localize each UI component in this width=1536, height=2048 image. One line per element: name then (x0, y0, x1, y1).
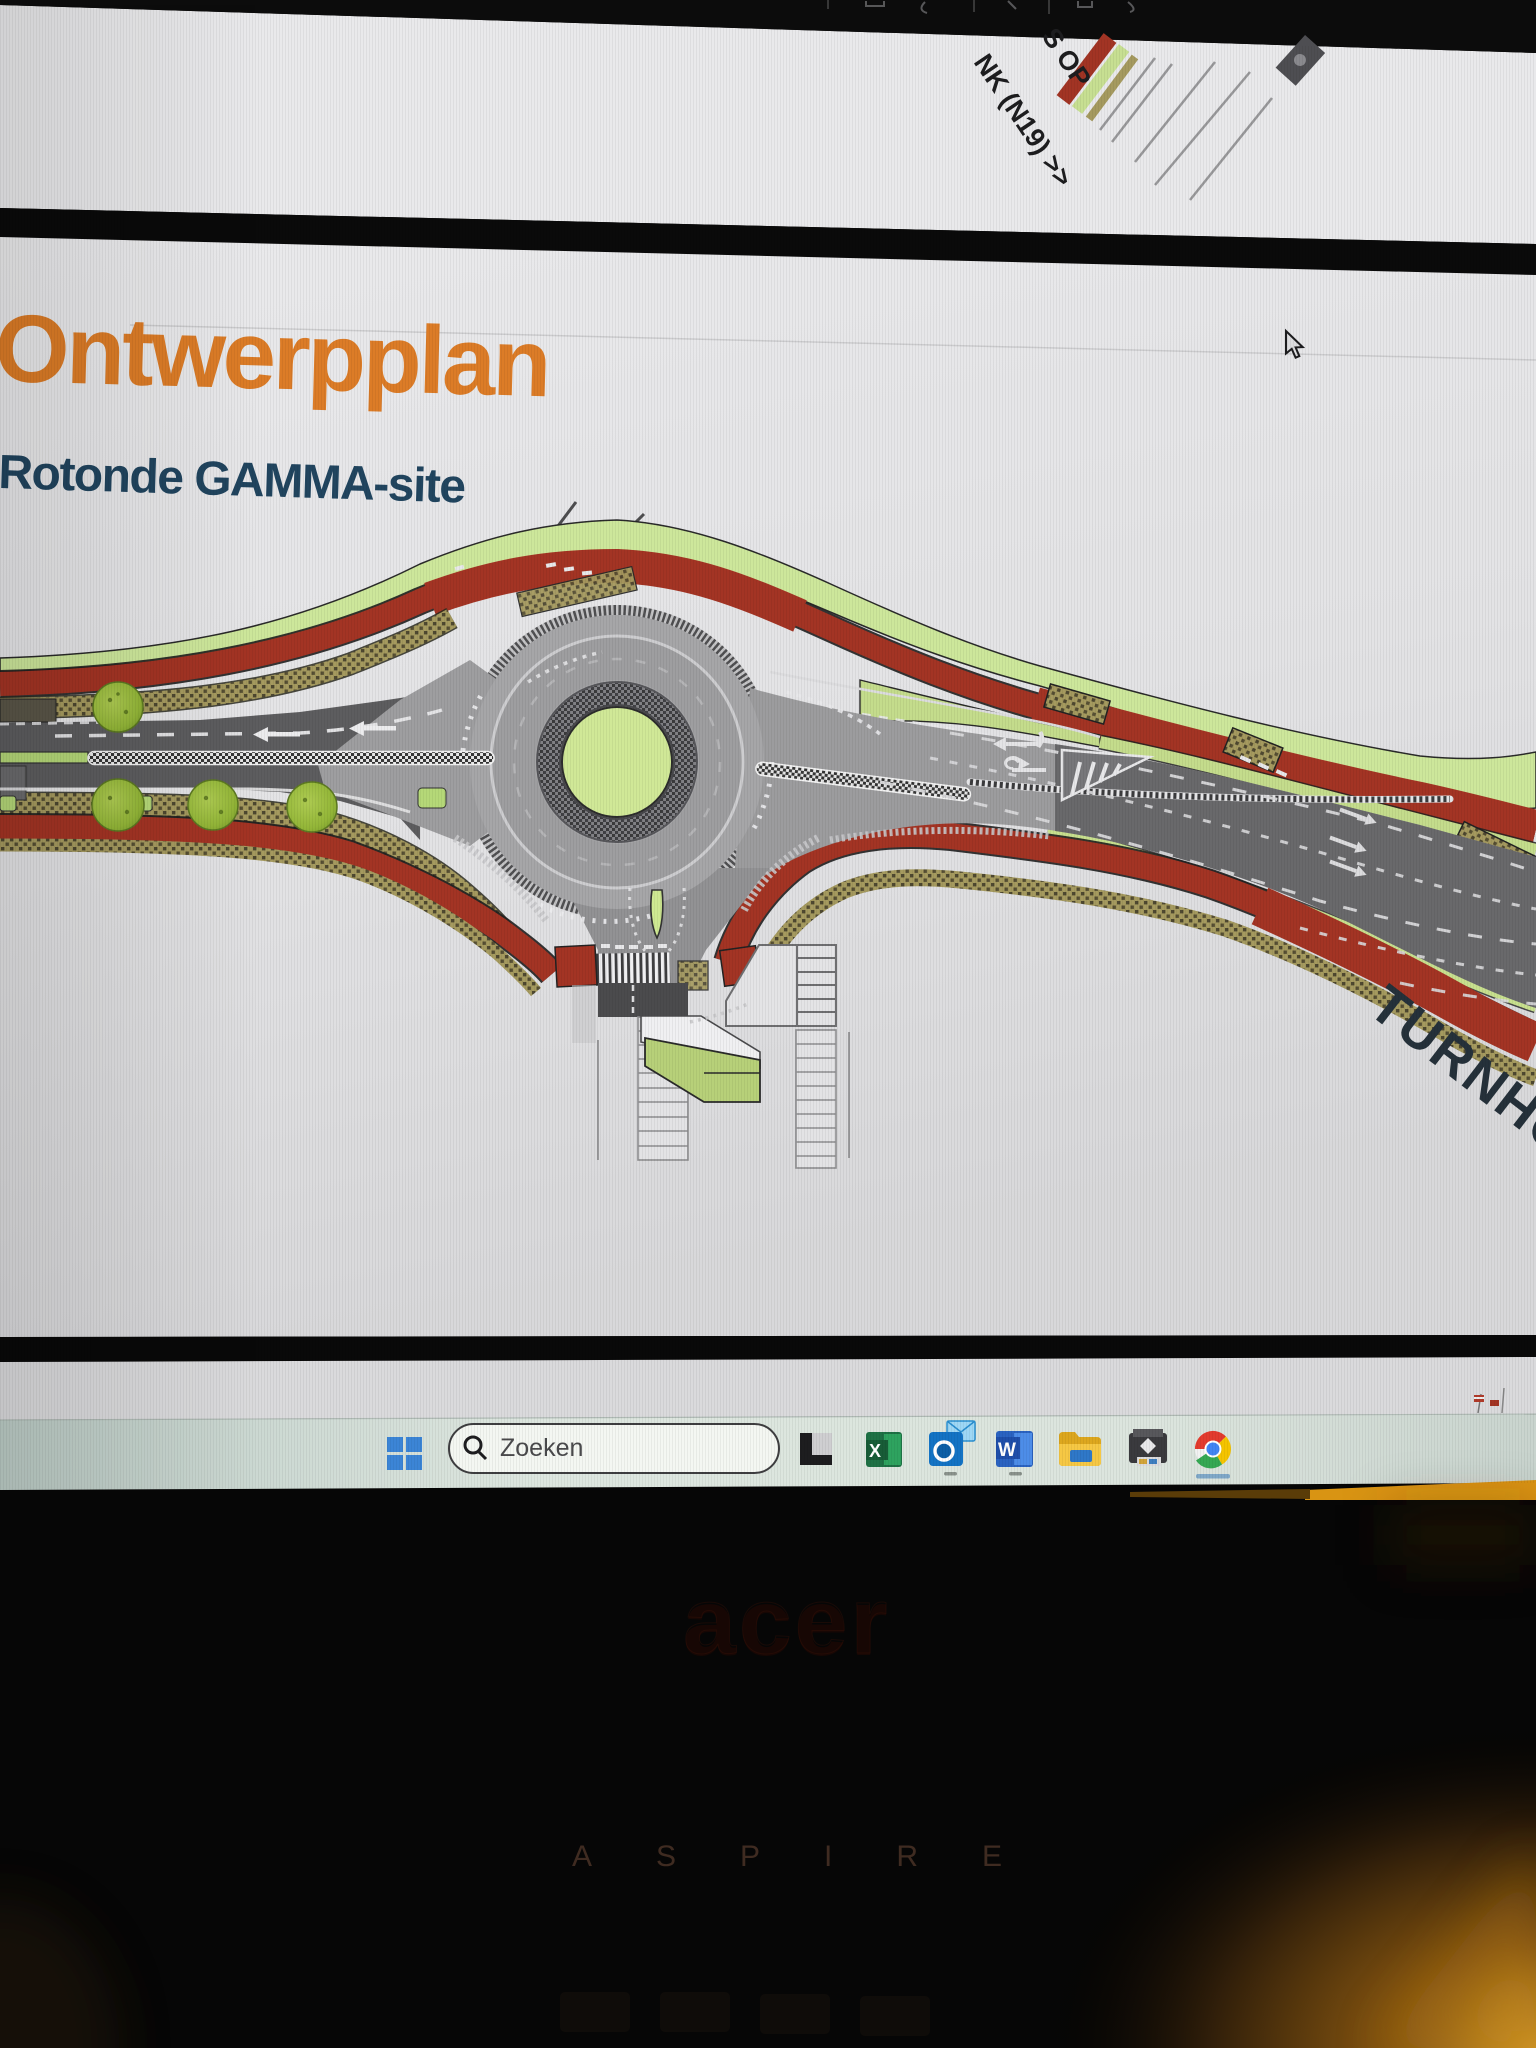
svg-text:ASPIRE: ASPIRE (572, 1840, 1066, 1873)
svg-text:acer: acer (683, 1568, 890, 1674)
